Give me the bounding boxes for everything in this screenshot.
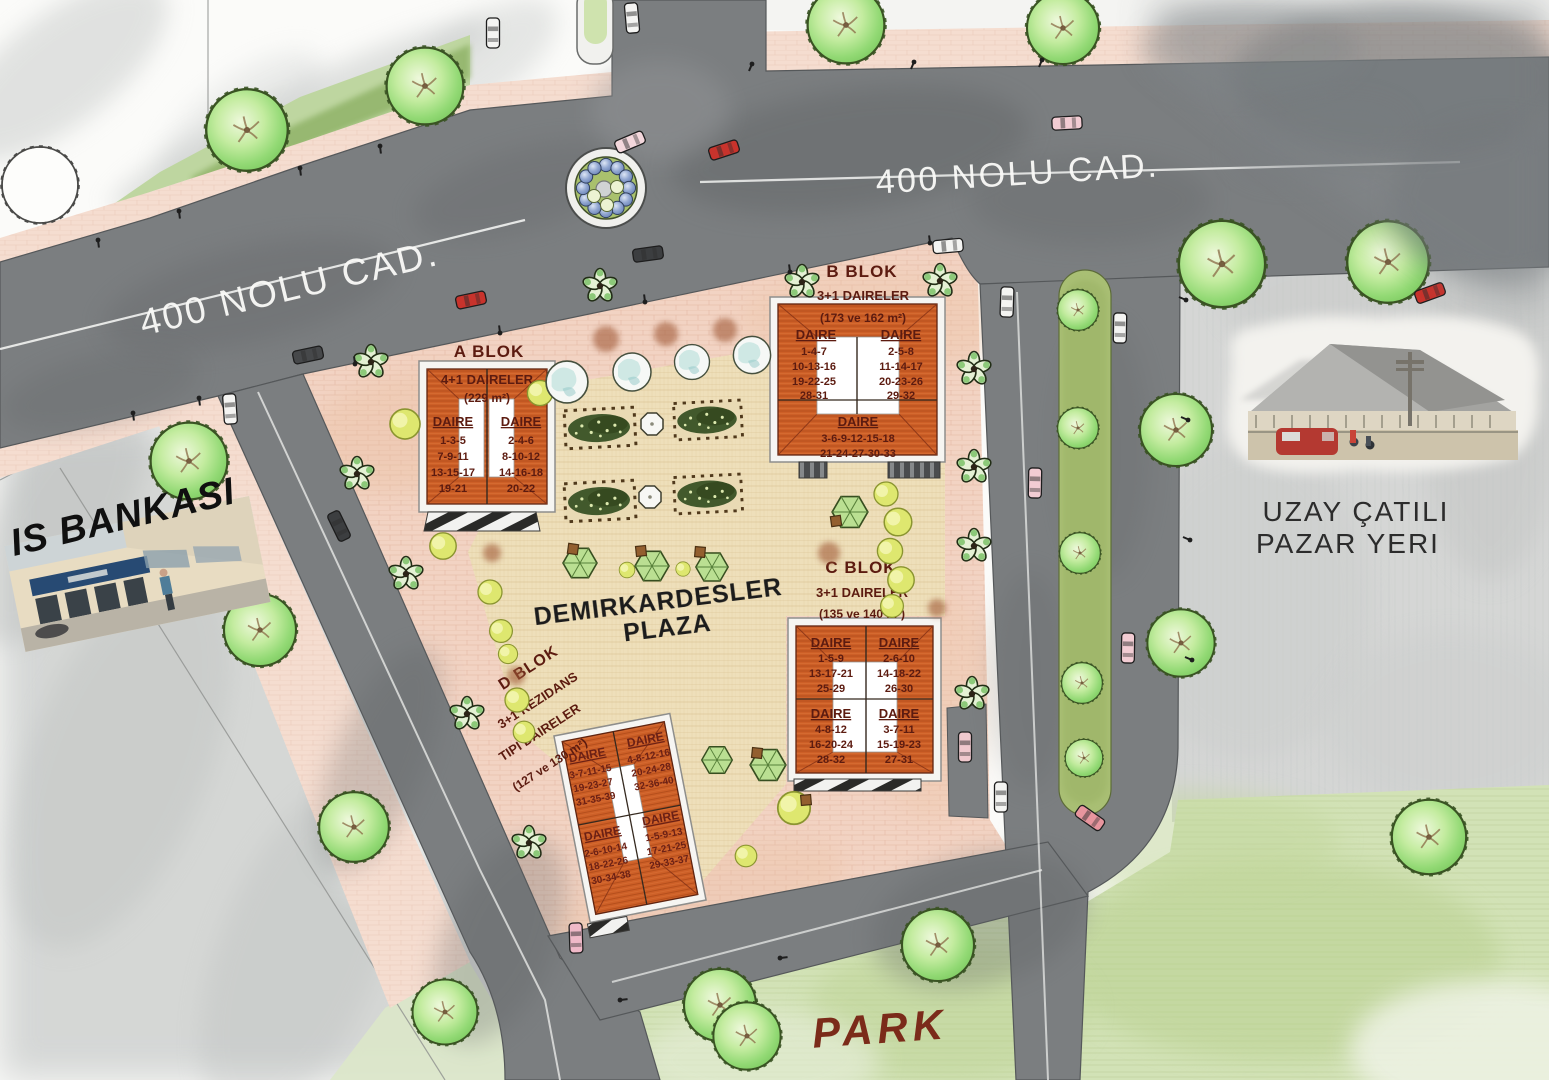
svg-text:15-19-23: 15-19-23 — [877, 739, 921, 751]
svg-text:3-7-11: 3-7-11 — [883, 724, 914, 736]
svg-text:DAIRE: DAIRE — [796, 327, 837, 342]
svg-text:3+1 DAIRELER: 3+1 DAIRELER — [817, 288, 910, 303]
svg-text:13-17-21: 13-17-21 — [809, 668, 853, 680]
svg-text:19-21: 19-21 — [439, 483, 467, 495]
svg-text:4+1 DAIRELER: 4+1 DAIRELER — [441, 372, 534, 387]
svg-text:21-24-27-30-33: 21-24-27-30-33 — [820, 448, 896, 460]
svg-text:A BLOK: A BLOK — [454, 342, 525, 361]
svg-text:19-22-25: 19-22-25 — [792, 376, 836, 388]
svg-text:DAIRE: DAIRE — [838, 414, 879, 429]
svg-text:PAZAR YERI: PAZAR YERI — [1256, 528, 1440, 559]
svg-text:1-3-5: 1-3-5 — [440, 435, 466, 447]
svg-text:B BLOK: B BLOK — [826, 262, 897, 281]
svg-text:3-6-9-12-15-18: 3-6-9-12-15-18 — [821, 433, 894, 445]
svg-text:13-15-17: 13-15-17 — [431, 467, 475, 479]
svg-text:8-10-12: 8-10-12 — [502, 451, 540, 463]
svg-text:DAIRE: DAIRE — [879, 706, 920, 721]
svg-text:4-8-12: 4-8-12 — [815, 724, 847, 736]
svg-text:2-5-8: 2-5-8 — [888, 346, 914, 358]
svg-text:DAIRE: DAIRE — [811, 635, 852, 650]
svg-text:27-31: 27-31 — [885, 754, 913, 766]
svg-text:1-4-7: 1-4-7 — [801, 346, 827, 358]
svg-text:16-20-24: 16-20-24 — [809, 739, 854, 751]
svg-text:1-5-9: 1-5-9 — [818, 653, 844, 665]
svg-text:7-9-11: 7-9-11 — [437, 451, 468, 463]
svg-text:DAIRE: DAIRE — [501, 414, 542, 429]
svg-text:PARK: PARK — [811, 1000, 950, 1056]
svg-text:10-13-16: 10-13-16 — [792, 361, 836, 373]
svg-text:29-32: 29-32 — [887, 390, 915, 402]
svg-text:(173 ve 162 m²): (173 ve 162 m²) — [820, 311, 906, 325]
svg-text:20-22: 20-22 — [507, 483, 535, 495]
svg-text:UZAY ÇATILI: UZAY ÇATILI — [1263, 496, 1450, 527]
svg-text:(229 m²): (229 m²) — [464, 391, 510, 405]
svg-text:DAIRE: DAIRE — [433, 414, 474, 429]
svg-text:DAIRE: DAIRE — [811, 706, 852, 721]
svg-text:DAIRE: DAIRE — [879, 635, 920, 650]
svg-text:11-14-17: 11-14-17 — [879, 361, 922, 373]
svg-text:2-6-10: 2-6-10 — [883, 653, 915, 665]
svg-text:20-23-26: 20-23-26 — [879, 376, 923, 388]
svg-text:25-29: 25-29 — [817, 683, 845, 695]
svg-text:26-30: 26-30 — [885, 683, 913, 695]
svg-text:14-18-22: 14-18-22 — [877, 668, 921, 680]
svg-text:2-4-6: 2-4-6 — [508, 435, 534, 447]
svg-text:DAIRE: DAIRE — [881, 327, 922, 342]
svg-text:28-31: 28-31 — [800, 390, 828, 402]
svg-text:28-32: 28-32 — [817, 754, 845, 766]
svg-text:14-16-18: 14-16-18 — [499, 467, 543, 479]
